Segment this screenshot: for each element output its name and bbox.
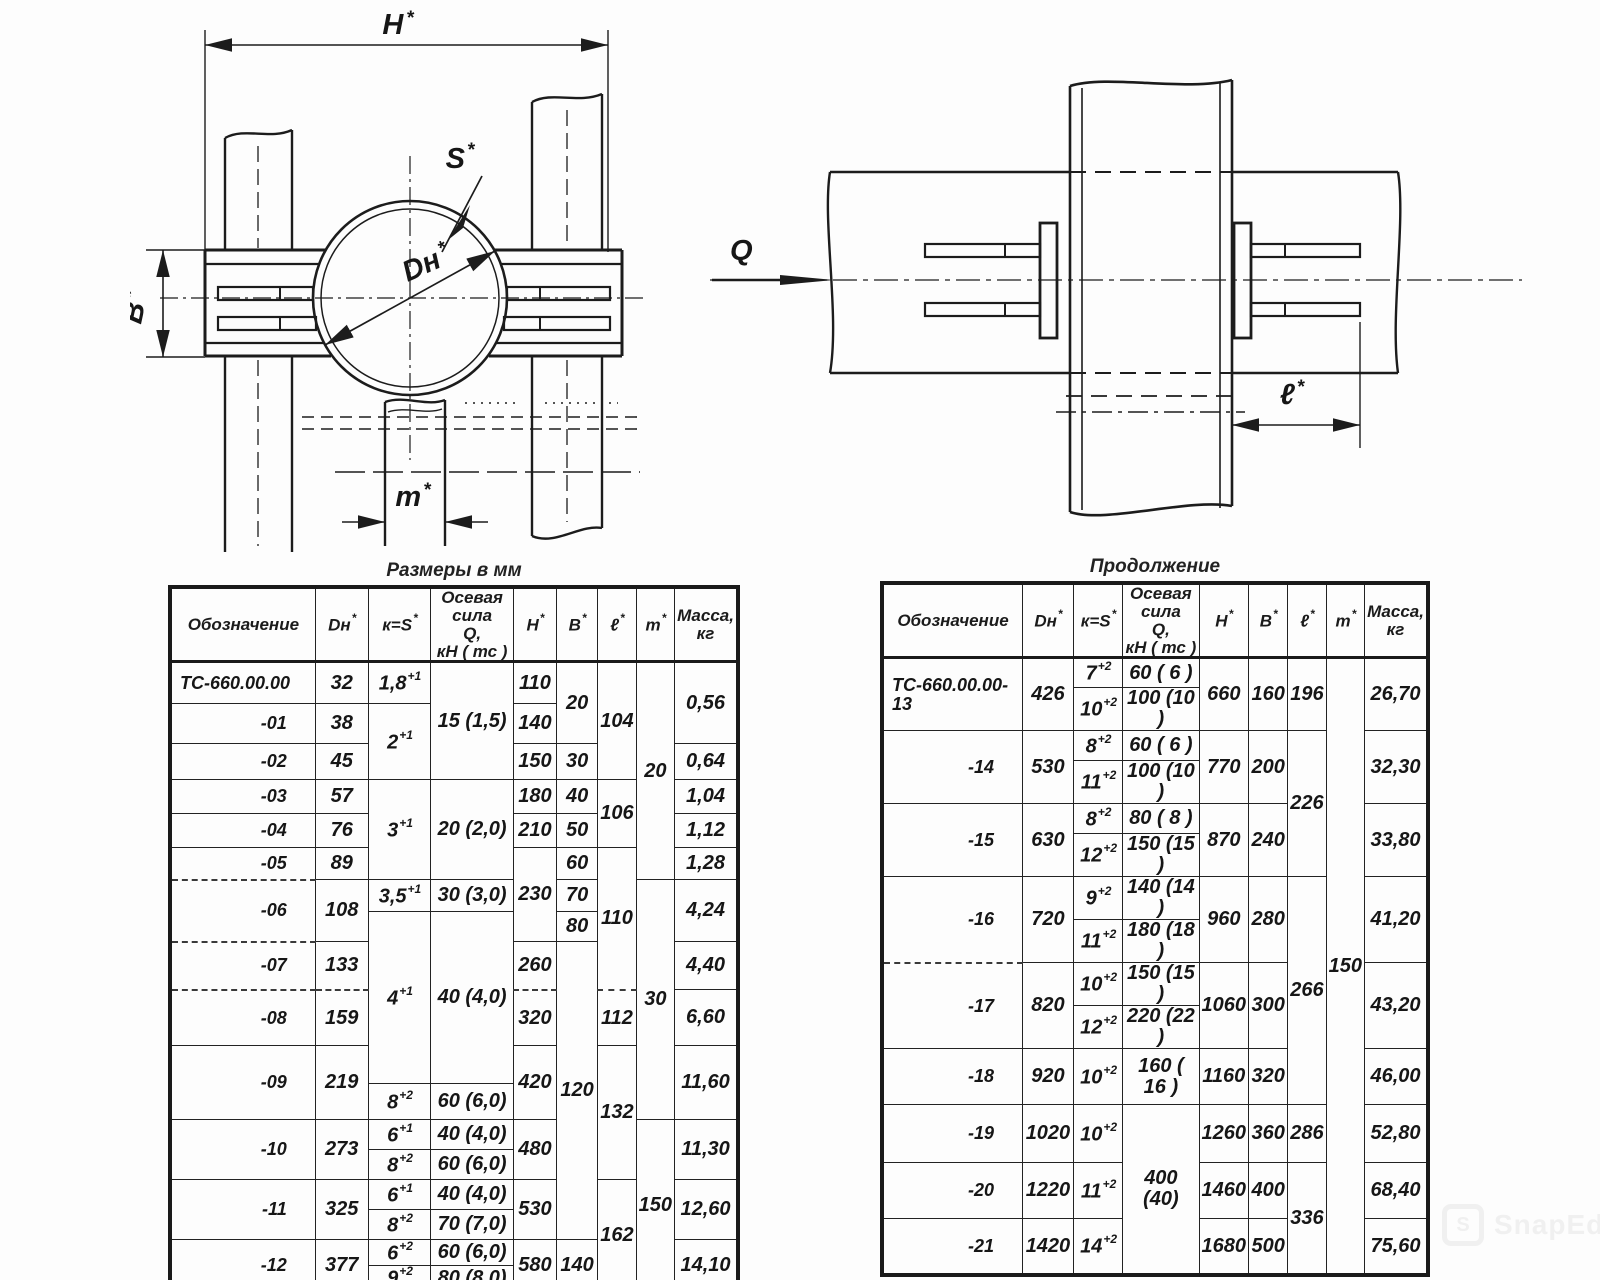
table-cell: 870 — [1199, 804, 1249, 877]
table-cell: 300 — [1249, 963, 1288, 1049]
table-cell: 240 — [1249, 804, 1288, 877]
table-cell: 46,00 — [1365, 1049, 1428, 1105]
lower-posts — [225, 356, 602, 552]
table-cell: 180 — [513, 780, 556, 814]
dimension-b: B* — [130, 250, 205, 357]
table-cell: 100 (10 ) — [1123, 761, 1199, 804]
table-cell: 20 — [556, 662, 597, 744]
table-cell: 150 (15 ) — [1123, 834, 1199, 877]
table-cell: 76 — [315, 814, 368, 848]
table-cell: 420 — [513, 1046, 556, 1120]
table-cell: 100 (10 ) — [1123, 688, 1199, 731]
table-cell: 273 — [315, 1120, 368, 1180]
pipe-circle — [160, 156, 645, 460]
table-cell: 8+2 — [368, 1150, 431, 1180]
table-cell: 11+2 — [1073, 1163, 1122, 1219]
table-cell: 8+2 — [1073, 731, 1122, 761]
table-cell: 8+2 — [368, 1210, 431, 1240]
table-cell: -04 — [170, 814, 315, 848]
table-cell: -01 — [170, 704, 315, 744]
table-cell: 110 — [513, 662, 556, 704]
left-table-title: Размеры в мм — [168, 560, 740, 582]
table-cell: 60 — [556, 848, 597, 880]
table-cell: 12+2 — [1073, 1006, 1122, 1049]
table-cell: 580 — [513, 1240, 556, 1280]
table-cell: -12 — [170, 1240, 315, 1280]
column-header: к=S* — [1073, 583, 1122, 658]
table-cell: 38 — [315, 704, 368, 744]
table-cell: 280 — [1249, 877, 1288, 963]
table-cell: 0,64 — [675, 744, 738, 780]
table-cell: 12,60 — [675, 1180, 738, 1240]
table-cell: 1,28 — [675, 848, 738, 880]
table-cell: 40 (4,0) — [431, 1180, 514, 1210]
table-cell: 160 — [1249, 658, 1288, 731]
table-cell: 120 — [556, 942, 597, 1240]
table-cell: -16 — [882, 877, 1023, 963]
table-cell: 180 (18 ) — [1123, 920, 1199, 963]
table-cell: 360 — [1249, 1105, 1288, 1163]
table-cell: 45 — [315, 744, 368, 780]
svg-text:ℓ*: ℓ* — [1280, 377, 1306, 411]
column-header: Масса, кг — [1365, 583, 1428, 658]
table-cell: 266 — [1288, 877, 1326, 1105]
front-view-drawing: H* — [130, 0, 710, 566]
table-cell: 8+2 — [1073, 804, 1122, 834]
column-header: к=S* — [368, 587, 431, 662]
column-header: Осевая сила Q, кН ( тс ) — [431, 587, 514, 662]
table-cell: 15 (1,5) — [431, 662, 514, 780]
dimension-l: ℓ* — [1232, 322, 1360, 448]
table-cell: 20 (2,0) — [431, 780, 514, 880]
table-cell: 230 — [513, 848, 556, 942]
dimension-s: S* — [442, 140, 482, 252]
table-cell: 320 — [513, 990, 556, 1046]
table-cell: 1160 — [1199, 1049, 1249, 1105]
table-cell: 920 — [1023, 1049, 1074, 1105]
column-header: H* — [513, 587, 556, 662]
table-cell: 106 — [598, 780, 636, 848]
table-cell: 8+2 — [368, 1084, 431, 1120]
table-cell: 52,80 — [1365, 1105, 1428, 1163]
table-cell: 400 — [1249, 1163, 1288, 1219]
table-cell: 820 — [1023, 963, 1074, 1049]
column-header: H* — [1199, 583, 1249, 658]
table-cell: 50 — [556, 814, 597, 848]
table-cell: 1,8+1 — [368, 662, 431, 704]
table-cell: 150 — [513, 744, 556, 780]
watermark: S SnapEdit — [1442, 1204, 1600, 1246]
table-cell: -03 — [170, 780, 315, 814]
table-row: -102736+140 (4,0)48015011,30 — [170, 1120, 738, 1150]
table-cell: 1060 — [1199, 963, 1249, 1049]
table-cell: 57 — [315, 780, 368, 814]
table-cell: 80 — [556, 912, 597, 942]
table-cell: 219 — [315, 1046, 368, 1120]
table-cell: 30 — [556, 744, 597, 780]
table-cell: 3,5+1 — [368, 880, 431, 912]
table-cell: -09 — [170, 1046, 315, 1120]
table-cell: 286 — [1288, 1105, 1326, 1163]
table-cell: 60 ( 6 ) — [1123, 731, 1199, 761]
continuation-table-section: Продолжение ОбозначениеDн*к=S*Осевая сил… — [880, 556, 1430, 1277]
column-header: m* — [1326, 583, 1364, 658]
table-cell: -18 — [882, 1049, 1023, 1105]
table-cell: 70 — [556, 880, 597, 912]
table-cell: 68,40 — [1365, 1163, 1428, 1219]
table-cell: 210 — [513, 814, 556, 848]
column-header: Осевая сила Q, кН ( тс ) — [1123, 583, 1199, 658]
table-cell: 4,40 — [675, 942, 738, 990]
m-channel — [385, 400, 445, 546]
column-header: Обозначение — [882, 583, 1023, 658]
table-cell: ТС-660.00.00-13 — [882, 658, 1023, 731]
table-cell: 1260 — [1199, 1105, 1249, 1163]
svg-text:B*: B* — [130, 288, 154, 326]
vertical-pipe — [1070, 80, 1232, 515]
table-cell: 60 ( 6 ) — [1123, 658, 1199, 688]
side-view-drawing: Q ℓ* — [700, 60, 1540, 620]
table-cell: 150 (15 ) — [1123, 963, 1199, 1006]
l-dim-label: ℓ — [1280, 379, 1296, 411]
table-cell: 1420 — [1023, 1219, 1074, 1275]
table-cell: 75,60 — [1365, 1219, 1428, 1275]
header-row: ОбозначениеDн*к=S*Осевая сила Q, кН ( тс… — [170, 587, 738, 662]
table-cell: -08 — [170, 990, 315, 1046]
table-cell: 1,12 — [675, 814, 738, 848]
column-header: Обозначение — [170, 587, 315, 662]
table-cell: 200 — [1249, 731, 1288, 804]
table-cell: 14,10 — [675, 1240, 738, 1280]
table-cell: 11+2 — [1073, 761, 1122, 804]
table-row: -061083,5+130 (3,0)70304,24 — [170, 880, 738, 912]
svg-text:S*: S* — [446, 140, 476, 175]
table-cell: 150 — [1326, 658, 1364, 1275]
svg-text:Q: Q — [730, 235, 753, 267]
table-cell: 4+1 — [368, 912, 431, 1084]
table-cell: 140 — [556, 1240, 597, 1280]
table-cell: 426 — [1023, 658, 1074, 731]
table-cell: 960 — [1199, 877, 1249, 963]
column-header: B* — [556, 587, 597, 662]
table-cell: 196 — [1288, 658, 1326, 731]
column-header: ℓ* — [598, 587, 636, 662]
table-cell: 9+2 — [368, 1266, 431, 1280]
table-cell: 10+2 — [1073, 1105, 1122, 1163]
table-cell: 110 — [598, 848, 636, 990]
table-row: ТС-660.00.00-134267+260 ( 6 )66016019615… — [882, 658, 1428, 688]
table-cell: 630 — [1023, 804, 1074, 877]
table-cell: 60 (6,0) — [431, 1240, 514, 1266]
table-cell: 70 (7,0) — [431, 1210, 514, 1240]
table-cell: 1020 — [1023, 1105, 1074, 1163]
table-cell: 226 — [1288, 731, 1326, 877]
table-cell: 10+2 — [1073, 1049, 1122, 1105]
table-cell: 30 (3,0) — [431, 880, 514, 912]
table-cell: 112 — [598, 990, 636, 1046]
table-cell: 14+2 — [1073, 1219, 1122, 1275]
hidden-edges — [302, 403, 640, 472]
table-cell: 11,30 — [675, 1120, 738, 1180]
table-cell: 660 — [1199, 658, 1249, 731]
dimension-m: m* — [342, 458, 488, 538]
table-cell: 6+2 — [368, 1240, 431, 1266]
scanned-drawing-page: H* — [0, 0, 1600, 1280]
table-cell: 9+2 — [1073, 877, 1122, 920]
table-cell: 325 — [315, 1180, 368, 1240]
table-cell: 260 — [513, 942, 556, 990]
table-cell: 60 (6,0) — [431, 1084, 514, 1120]
table-cell: 140 (14 ) — [1123, 877, 1199, 920]
table-cell: 10+2 — [1073, 963, 1122, 1006]
table-cell: 20 — [636, 662, 674, 880]
table-cell: 40 (4,0) — [431, 1120, 514, 1150]
table-cell: 500 — [1249, 1219, 1288, 1275]
dimensions-table-section: Размеры в мм ОбозначениеDн*к=S*Осевая си… — [168, 560, 740, 1280]
table-cell: 400 (40) — [1123, 1105, 1199, 1275]
header-row: ОбозначениеDн*к=S*Осевая сила Q, кН ( тс… — [882, 583, 1428, 658]
table-cell: 6,60 — [675, 990, 738, 1046]
table-cell: -20 — [882, 1163, 1023, 1219]
table-cell: -06 — [170, 880, 315, 942]
table-cell: 26,70 — [1365, 658, 1428, 731]
table-cell: 1220 — [1023, 1163, 1074, 1219]
table-cell: 43,20 — [1365, 963, 1428, 1049]
s-dim-label: S — [446, 143, 466, 175]
bolt-slots — [218, 287, 610, 330]
column-header: Dн* — [315, 587, 368, 662]
table-cell: 6+1 — [368, 1180, 431, 1210]
table-cell: 1,04 — [675, 780, 738, 814]
watermark-icon: S — [1442, 1204, 1484, 1246]
table-cell: 32,30 — [1365, 731, 1428, 804]
table-cell: -17 — [882, 963, 1023, 1049]
right-table-title: Продолжение — [880, 556, 1430, 578]
table-cell: 10+2 — [1073, 688, 1122, 731]
m-dim-label: m — [395, 481, 421, 513]
column-header: B* — [1249, 583, 1288, 658]
column-header: Масса, кг — [675, 587, 738, 662]
table-cell: 770 — [1199, 731, 1249, 804]
table-cell: 530 — [513, 1180, 556, 1240]
table-cell: -15 — [882, 804, 1023, 877]
table-cell: 336 — [1288, 1163, 1326, 1275]
table-cell: 41,20 — [1365, 877, 1428, 963]
table-cell: 3+1 — [368, 780, 431, 880]
table-cell: 0,56 — [675, 662, 738, 744]
table-cell: 150 — [636, 1120, 674, 1280]
table-cell: 1460 — [1199, 1163, 1249, 1219]
table-cell: -05 — [170, 848, 315, 880]
table-cell: 40 — [556, 780, 597, 814]
table-cell: 159 — [315, 990, 368, 1046]
svg-text:H*: H* — [382, 8, 415, 41]
table-cell: 80 ( 8 ) — [1123, 804, 1199, 834]
column-header: m* — [636, 587, 674, 662]
table-cell: 11,60 — [675, 1046, 738, 1120]
column-header: Dн* — [1023, 583, 1074, 658]
table-cell: 720 — [1023, 877, 1074, 963]
table-cell: -14 — [882, 731, 1023, 804]
beam-plate — [828, 172, 1400, 412]
table-cell: 80 (8,0) — [431, 1266, 514, 1280]
table-cell: 162 — [598, 1180, 636, 1280]
table-cell: 133 — [315, 942, 368, 990]
table-cell: 32 — [315, 662, 368, 704]
b-dim-label: B — [130, 299, 152, 326]
table-cell: 530 — [1023, 731, 1074, 804]
watermark-text: SnapEdit — [1494, 1209, 1600, 1241]
table-cell: 220 (22 ) — [1123, 1006, 1199, 1049]
table-cell: 480 — [513, 1120, 556, 1180]
table-cell: 320 — [1249, 1049, 1288, 1105]
table-cell: 108 — [315, 880, 368, 942]
table-cell: 40 (4,0) — [431, 912, 514, 1084]
table-cell: 33,80 — [1365, 804, 1428, 877]
table-cell: 7+2 — [1073, 658, 1122, 688]
table-cell: -11 — [170, 1180, 315, 1240]
upper-posts — [225, 94, 602, 250]
column-header: ℓ* — [1288, 583, 1326, 658]
table-cell: 89 — [315, 848, 368, 880]
table-cell: -10 — [170, 1120, 315, 1180]
table-cell: 104 — [598, 662, 636, 780]
table-cell: -19 — [882, 1105, 1023, 1163]
svg-text:m*: m* — [395, 480, 432, 513]
table-cell: 60 (6,0) — [431, 1150, 514, 1180]
h-dim-label: H — [382, 9, 404, 41]
table-cell: 4,24 — [675, 880, 738, 942]
table-cell: 160 ( 16 ) — [1123, 1049, 1199, 1105]
dimensions-table: ОбозначениеDн*к=S*Осевая сила Q, кН ( тс… — [168, 585, 740, 1280]
table-cell: 11+2 — [1073, 920, 1122, 963]
table-cell: -07 — [170, 942, 315, 990]
table-cell: ТС-660.00.00 — [170, 662, 315, 704]
table-cell: -02 — [170, 744, 315, 780]
continuation-table: ОбозначениеDн*к=S*Осевая сила Q, кН ( тс… — [880, 581, 1430, 1277]
table-cell: 1680 — [1199, 1219, 1249, 1275]
force-q: Q — [712, 235, 834, 285]
table-row: ТС-660.00.00321,8+115 (1,5)11020104200,5… — [170, 662, 738, 704]
svg-text:Dн*: Dн* — [397, 237, 457, 289]
table-cell: 140 — [513, 704, 556, 744]
table-cell: 2+1 — [368, 704, 431, 780]
table-cell: -21 — [882, 1219, 1023, 1275]
table-cell: 132 — [598, 1046, 636, 1180]
table-cell: 377 — [315, 1240, 368, 1280]
table-cell: 6+1 — [368, 1120, 431, 1150]
dimension-h: H* — [205, 8, 608, 252]
table-cell: 30 — [636, 880, 674, 1120]
table-cell: 12+2 — [1073, 834, 1122, 877]
q-force-label: Q — [730, 235, 753, 267]
